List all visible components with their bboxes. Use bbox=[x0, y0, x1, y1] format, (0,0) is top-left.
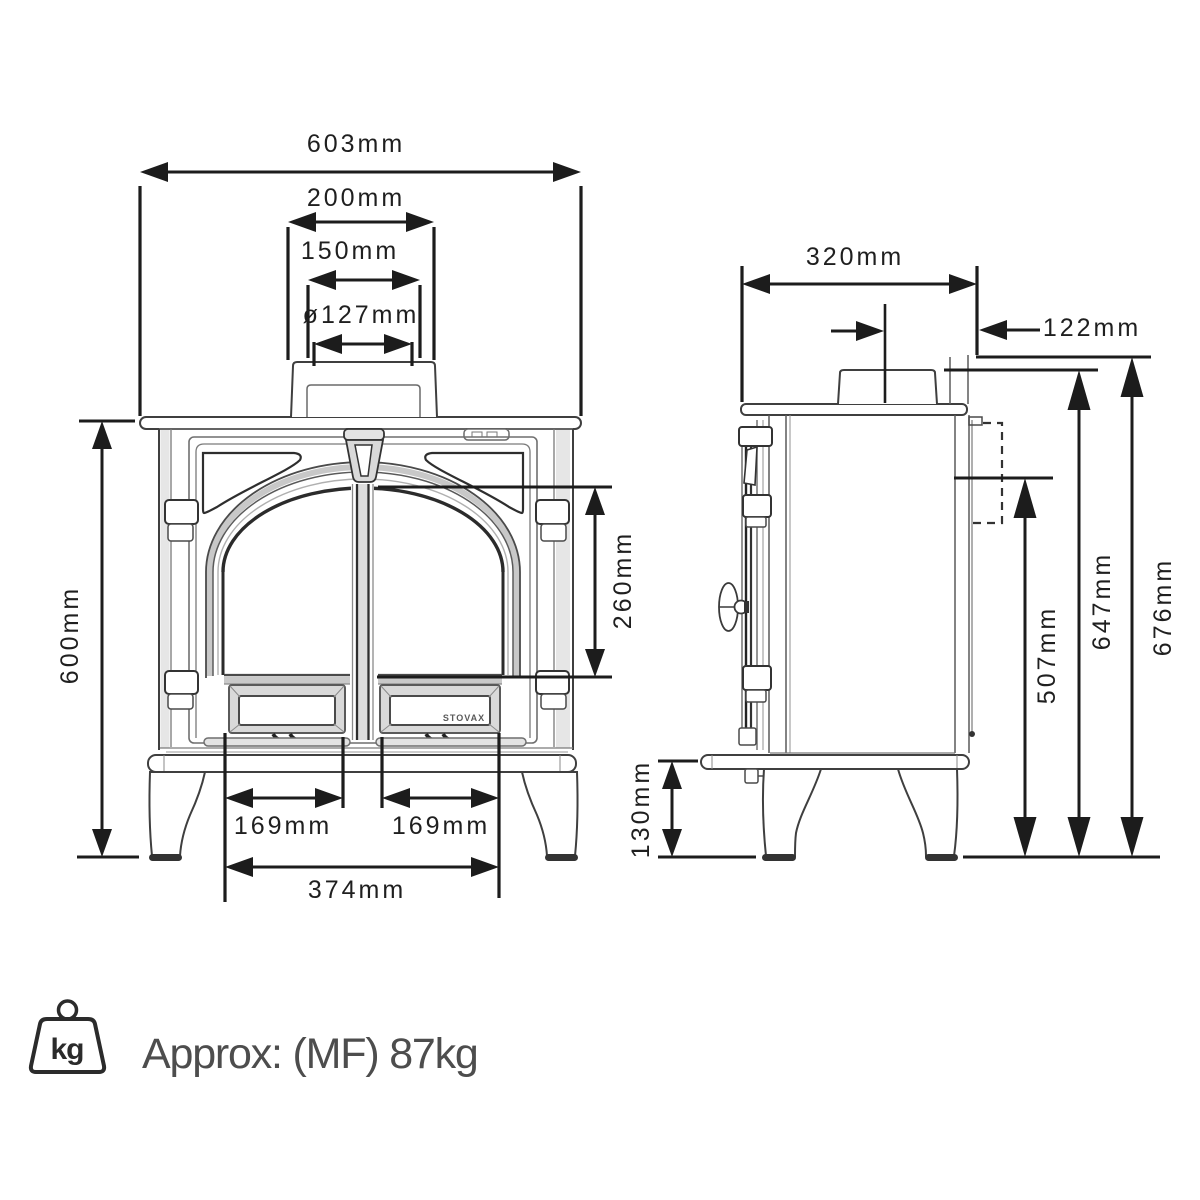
svg-text:676mm: 676mm bbox=[1149, 558, 1177, 656]
svg-text:122mm: 122mm bbox=[1043, 314, 1141, 342]
svg-text:600mm: 600mm bbox=[56, 586, 84, 684]
svg-text:507mm: 507mm bbox=[1033, 606, 1061, 704]
svg-text:374mm: 374mm bbox=[308, 876, 406, 904]
svg-text:200mm: 200mm bbox=[307, 184, 405, 212]
svg-text:130mm: 130mm bbox=[627, 760, 655, 858]
svg-text:STOVAX: STOVAX bbox=[443, 713, 485, 723]
svg-text:169mm: 169mm bbox=[392, 812, 490, 840]
svg-text:169mm: 169mm bbox=[234, 812, 332, 840]
svg-text:260mm: 260mm bbox=[609, 531, 637, 629]
svg-text:320mm: 320mm bbox=[806, 243, 904, 271]
svg-text:603mm: 603mm bbox=[307, 130, 405, 158]
svg-text:Approx: (MF) 87kg: Approx: (MF) 87kg bbox=[142, 1030, 478, 1078]
svg-text:150mm: 150mm bbox=[301, 237, 399, 265]
svg-text:ø127mm: ø127mm bbox=[303, 301, 420, 329]
svg-text:647mm: 647mm bbox=[1088, 552, 1116, 650]
svg-text:kg: kg bbox=[50, 1033, 83, 1066]
